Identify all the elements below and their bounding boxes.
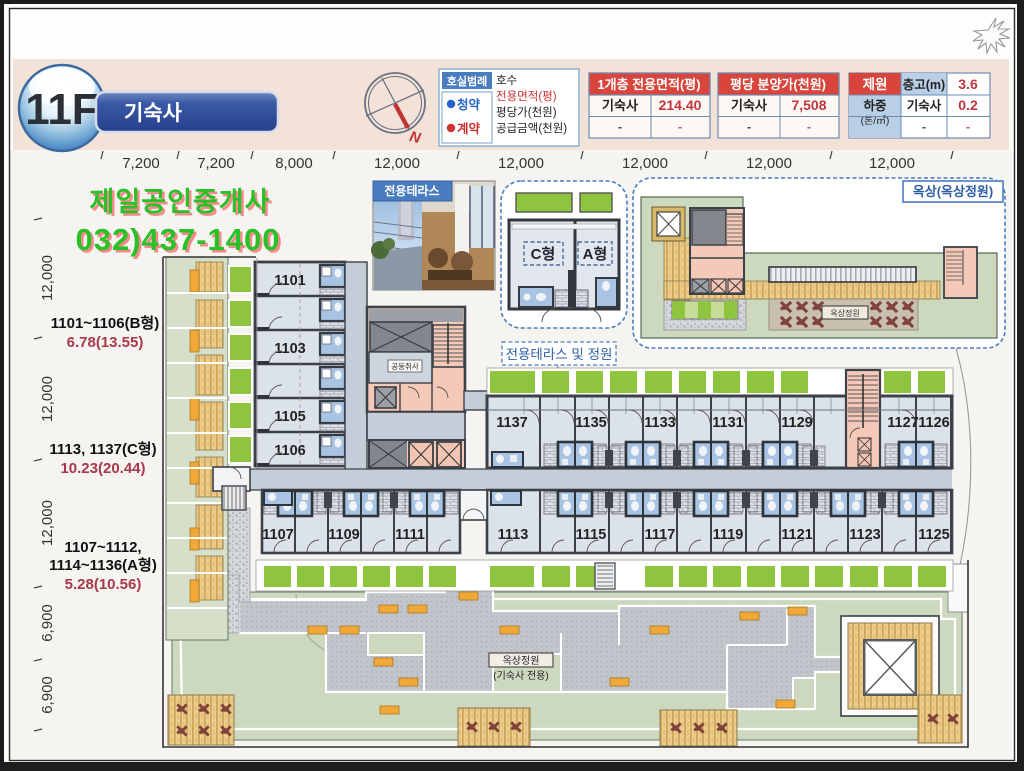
- svg-text:1135: 1135: [575, 415, 606, 431]
- svg-text:-: -: [747, 119, 751, 134]
- svg-text:5.28(10.56): 5.28(10.56): [65, 576, 142, 593]
- svg-text:1109: 1109: [328, 527, 359, 543]
- svg-text:1125: 1125: [918, 527, 949, 543]
- svg-text:평당가(천원): 평당가(천원): [496, 105, 557, 119]
- svg-text:1119: 1119: [713, 527, 744, 543]
- svg-text:전용테라스 및 정원: 전용테라스 및 정원: [506, 347, 613, 362]
- svg-text:1115: 1115: [576, 527, 607, 543]
- svg-text:공급금액(천원): 공급금액(천원): [496, 121, 567, 135]
- svg-text:12,000: 12,000: [39, 500, 56, 546]
- svg-text:1101~1106(B형): 1101~1106(B형): [51, 315, 159, 332]
- svg-text:1106: 1106: [274, 443, 305, 459]
- svg-text:12,000: 12,000: [39, 255, 56, 301]
- svg-text:1129: 1129: [781, 415, 812, 431]
- svg-text:-: -: [922, 119, 926, 134]
- svg-text:12,000: 12,000: [374, 155, 420, 172]
- svg-text:12,000: 12,000: [622, 155, 668, 172]
- svg-text:-: -: [807, 119, 811, 134]
- svg-text:층고(m): 층고(m): [903, 77, 945, 92]
- svg-text:계약: 계약: [457, 121, 481, 136]
- svg-text:청약: 청약: [457, 97, 481, 112]
- svg-text:옥상(옥상정원): 옥상(옥상정원): [913, 184, 993, 199]
- svg-text:1126: 1126: [918, 415, 949, 431]
- svg-text:12,000: 12,000: [498, 155, 544, 172]
- svg-text:호실범례: 호실범례: [447, 74, 487, 88]
- svg-text:제원: 제원: [863, 77, 888, 92]
- svg-text:11F: 11F: [25, 85, 98, 134]
- svg-text:기숙사: 기숙사: [124, 102, 183, 125]
- svg-text:032)437-1400: 032)437-1400: [75, 222, 280, 257]
- svg-text:기숙사: 기숙사: [731, 98, 767, 113]
- svg-text:기숙사: 기숙사: [602, 98, 638, 113]
- svg-text:옥상정원: 옥상정원: [830, 308, 859, 318]
- svg-text:-: -: [966, 119, 970, 134]
- svg-text:12,000: 12,000: [869, 155, 915, 172]
- svg-text:6.78(13.55): 6.78(13.55): [67, 334, 144, 351]
- svg-text:1121: 1121: [781, 527, 812, 543]
- svg-text:1107: 1107: [262, 527, 293, 543]
- svg-text:1114~1136(A형): 1114~1136(A형): [49, 557, 157, 574]
- svg-text:7,200: 7,200: [122, 155, 160, 172]
- svg-text:1133: 1133: [644, 415, 675, 431]
- svg-text:호수: 호수: [496, 74, 517, 87]
- svg-text:-: -: [678, 119, 682, 134]
- svg-text:1103: 1103: [274, 341, 305, 357]
- svg-text:12,000: 12,000: [39, 376, 56, 422]
- svg-text:7,508: 7,508: [791, 97, 826, 113]
- svg-text:제일공인중개사: 제일공인중개사: [90, 187, 271, 217]
- svg-text:1113: 1113: [498, 527, 529, 543]
- svg-text:평당 분양가(천원): 평당 분양가(천원): [730, 77, 826, 92]
- svg-text:1131: 1131: [712, 415, 743, 431]
- svg-text:8,000: 8,000: [275, 155, 313, 172]
- svg-text:1137: 1137: [496, 415, 527, 431]
- svg-text:1117: 1117: [645, 527, 676, 543]
- svg-text:A형: A형: [583, 246, 608, 263]
- svg-text:공동취사: 공동취사: [391, 362, 419, 371]
- svg-text:214.40: 214.40: [659, 97, 702, 113]
- svg-text:하중: 하중: [863, 98, 887, 113]
- svg-text:1123: 1123: [849, 527, 880, 543]
- svg-text:6,900: 6,900: [39, 604, 56, 642]
- svg-text:1111: 1111: [395, 527, 425, 543]
- svg-text:옥상정원: 옥상정원: [503, 655, 540, 667]
- svg-text:1105: 1105: [274, 409, 305, 425]
- svg-text:1개층 전용면적(평): 1개층 전용면적(평): [597, 77, 700, 92]
- svg-text:기숙사: 기숙사: [907, 98, 942, 113]
- svg-text:0.2: 0.2: [958, 97, 978, 113]
- svg-text:6,900: 6,900: [39, 676, 56, 714]
- svg-text:1107~1112,: 1107~1112,: [64, 539, 141, 556]
- svg-text:C형: C형: [531, 246, 556, 263]
- svg-text:1113, 1137(C형): 1113, 1137(C형): [49, 441, 156, 458]
- svg-text:12,000: 12,000: [746, 155, 792, 172]
- svg-text:3.6: 3.6: [958, 76, 978, 92]
- svg-text:(기숙사 전용): (기숙사 전용): [493, 670, 548, 682]
- svg-text:전용면적(평): 전용면적(평): [496, 90, 557, 103]
- svg-text:7,200: 7,200: [197, 155, 235, 172]
- svg-text:전용테라스: 전용테라스: [384, 183, 439, 198]
- svg-text:-: -: [618, 119, 622, 134]
- svg-text:10.23(20.44): 10.23(20.44): [60, 460, 145, 477]
- svg-text:1101: 1101: [274, 273, 305, 289]
